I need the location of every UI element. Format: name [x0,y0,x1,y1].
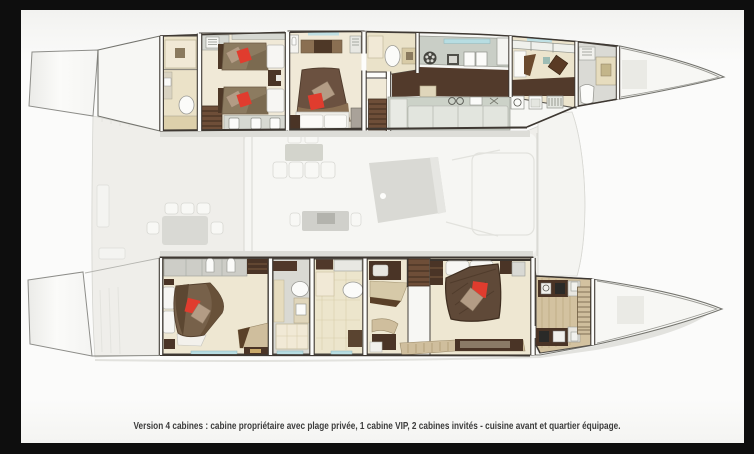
svg-text:Version 4 cabines : cabine pro: Version 4 cabines : cabine propriétaire … [134,420,621,432]
